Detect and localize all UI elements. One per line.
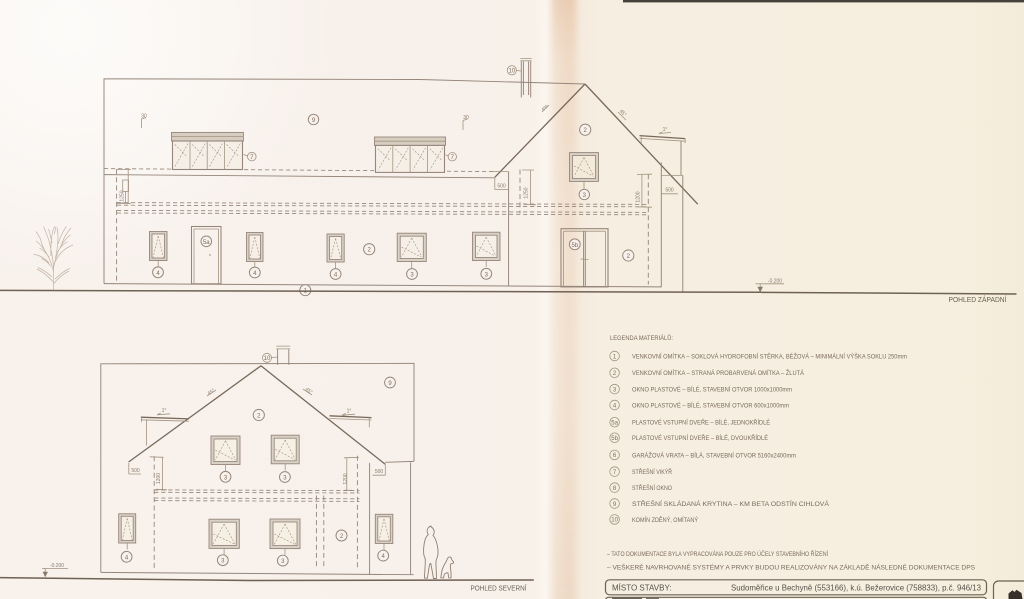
svg-text:500: 500 — [375, 469, 384, 475]
svg-text:GARÁŽOVÁ VRATA – BÍLÁ, STAVE: GARÁŽOVÁ VRATA – BÍLÁ, STAVEBNÍ OTVOR 51… — [632, 450, 796, 459]
svg-text:1200: 1200 — [635, 191, 641, 202]
svg-text:VENKOVNÍ OMÍTKA – SOKLOVÁ HY: VENKOVNÍ OMÍTKA – SOKLOVÁ HYDROFOBNÍ STĚ… — [632, 351, 907, 360]
svg-text:5b: 5b — [611, 436, 618, 442]
svg-text:5a: 5a — [611, 421, 618, 427]
svg-text:PLASTOVÉ VSTUPNÍ DVEŘE – BÍL: PLASTOVÉ VSTUPNÍ DVEŘE – BÍLÉ, DVOUKŘÍDL… — [632, 433, 768, 442]
svg-text:OKNO PLASTOVÉ – BÍLÉ, STAVE: OKNO PLASTOVÉ – BÍLÉ, STAVEBNÍ OTVOR 600… — [632, 400, 789, 409]
svg-text:KOMÍN ZDĚNÝ, OMÍTANÝ: KOMÍN ZDĚNÝ, OMÍTANÝ — [632, 515, 698, 524]
svg-text:Sudoměřice u Bechyně (553166),: Sudoměřice u Bechyně (553166), k.ú. Beže… — [731, 583, 982, 592]
svg-text:STŘEŠNÍ OKNO: STŘEŠNÍ OKNO — [632, 483, 672, 492]
svg-text:1°: 1° — [162, 408, 167, 414]
svg-text:1°: 1° — [663, 127, 668, 133]
svg-text:1250: 1250 — [524, 187, 530, 198]
svg-text:OKNO PLASTOVÉ – BÍLÉ, STAVE: OKNO PLASTOVÉ – BÍLÉ, STAVEBNÍ OTVOR 100… — [632, 385, 792, 394]
svg-text:5b: 5b — [571, 243, 578, 249]
svg-text:1250: 1250 — [120, 190, 126, 201]
svg-text:500: 500 — [131, 468, 140, 474]
svg-text:1200: 1200 — [156, 473, 162, 484]
svg-text:1200: 1200 — [343, 473, 349, 484]
svg-text:10: 10 — [264, 356, 271, 362]
svg-text:STŘEŠNÍ SKLÁDANÁ KRYTINA – K: STŘEŠNÍ SKLÁDANÁ KRYTINA – KM BETA ODSTÍ… — [632, 499, 829, 508]
svg-text:POHLED SEVERNÍ: POHLED SEVERNÍ — [471, 584, 527, 593]
svg-text:30: 30 — [141, 114, 147, 120]
svg-text:500: 500 — [497, 184, 506, 190]
svg-text:-0.200: -0.200 — [768, 278, 782, 284]
svg-text:10: 10 — [508, 69, 515, 75]
svg-text:– TATO DOKUMENTACE BYLA VYPRA: – TATO DOKUMENTACE BYLA VYPRACOVÁNA POUZ… — [607, 549, 828, 558]
svg-text:-0.200: -0.200 — [50, 563, 64, 569]
svg-text:VENKOVNÍ OMÍTKA – STRANÁ PRO: VENKOVNÍ OMÍTKA – STRANÁ PROBARVENÁ OMÍT… — [632, 368, 804, 377]
svg-text:10: 10 — [611, 518, 618, 524]
svg-text:500: 500 — [665, 188, 674, 194]
svg-text:PLASTOVÉ VSTUPNÍ DVEŘE – BÍL: PLASTOVÉ VSTUPNÍ DVEŘE – BÍLÉ, JEDNOKŘÍD… — [632, 418, 770, 427]
svg-text:30: 30 — [463, 115, 469, 121]
svg-text:LEGENDA MATERIÁLŮ:: LEGENDA MATERIÁLŮ: — [610, 333, 673, 342]
svg-text:5a: 5a — [203, 240, 210, 246]
svg-text:1°: 1° — [347, 409, 352, 415]
svg-text:MÍSTO STAVBY:: MÍSTO STAVBY: — [612, 584, 672, 593]
svg-text:STŘEŠNÍ VIKÝŘ: STŘEŠNÍ VIKÝŘ — [632, 467, 672, 476]
svg-text:POHLED ZÁPADNÍ: POHLED ZÁPADNÍ — [949, 295, 1007, 304]
svg-text:– VEŠKERÉ NAVRHOVANÉ SYSTÉMY: – VEŠKERÉ NAVRHOVANÉ SYSTÉMY A PRVKY BUD… — [607, 563, 975, 572]
